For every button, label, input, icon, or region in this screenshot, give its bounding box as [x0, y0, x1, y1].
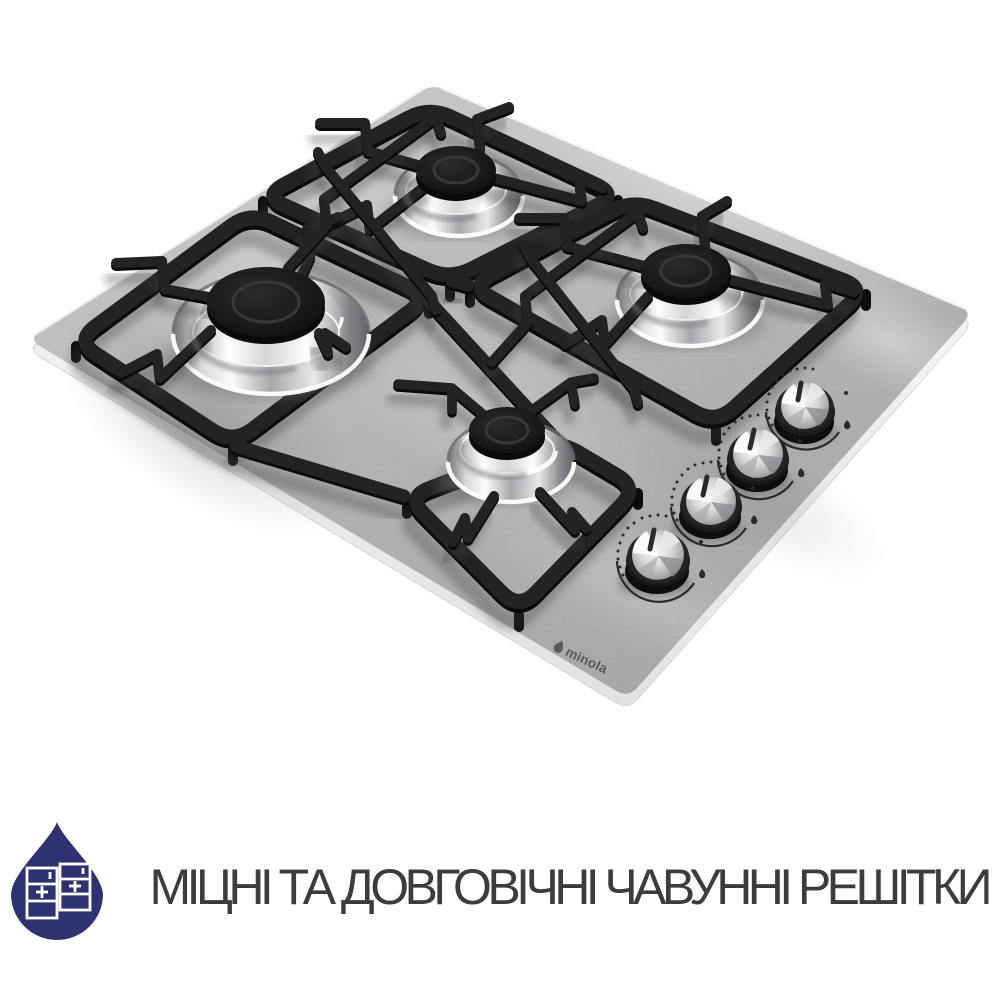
svg-text:МІЦНІ ТА ДОВГОВІЧНІ ЧАВУННІ РЕ: МІЦНІ ТА ДОВГОВІЧНІ ЧАВУННІ РЕШІТКИ [150, 859, 993, 915]
